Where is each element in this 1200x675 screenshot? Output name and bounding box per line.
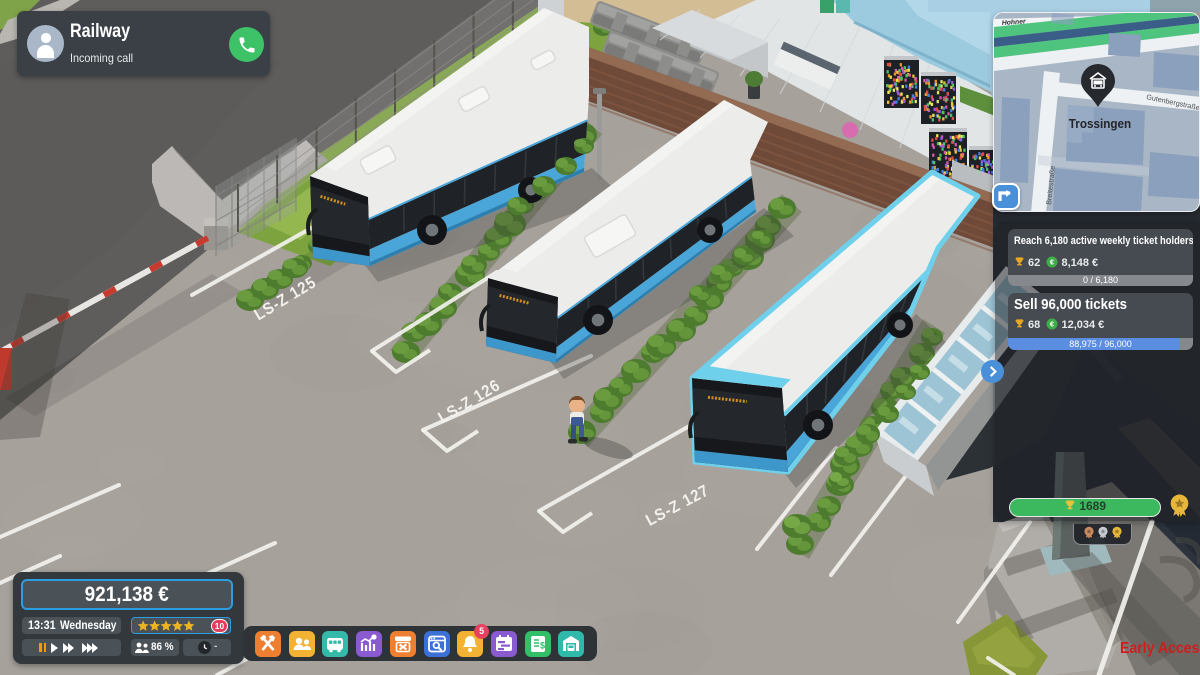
svg-text:Trossingen: Trossingen xyxy=(1069,116,1131,131)
svg-text:$: $ xyxy=(540,641,545,651)
